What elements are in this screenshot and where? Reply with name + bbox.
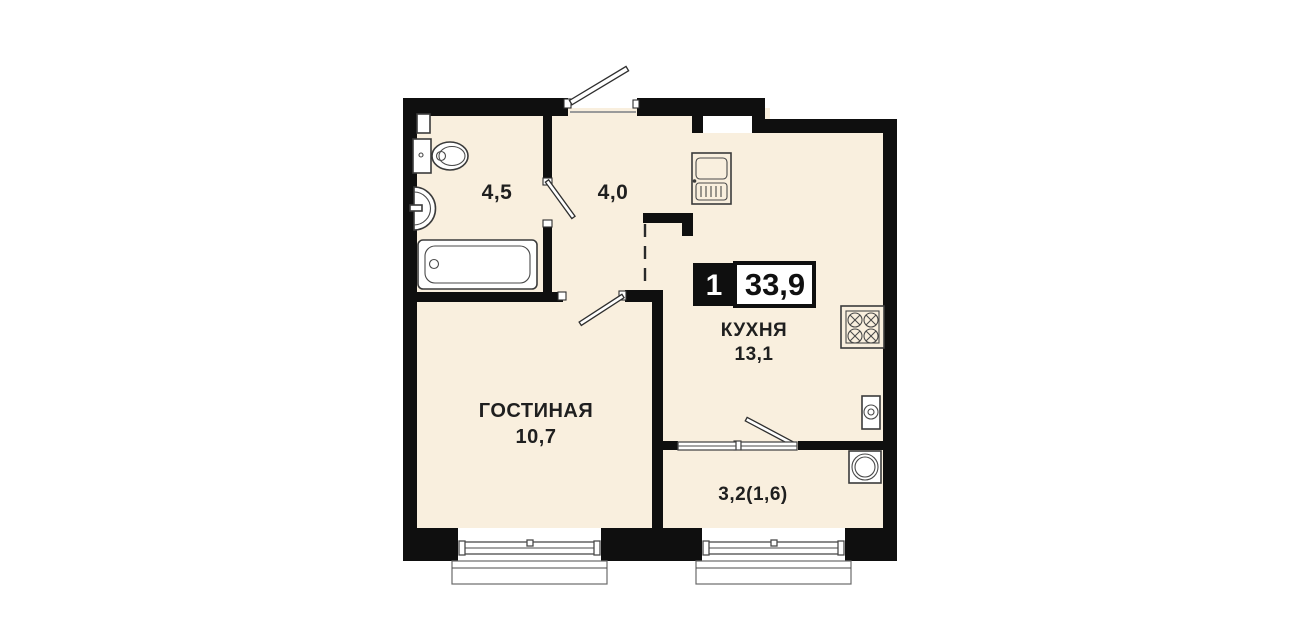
entrance-jamb-right <box>633 100 639 108</box>
kitchen-name-label: КУХНЯ <box>721 320 787 341</box>
wall-kitchen-living <box>652 290 663 531</box>
shelf-icon <box>417 114 430 133</box>
apartment-floor <box>407 108 892 556</box>
wall-bottom-1 <box>403 528 458 561</box>
window-cap-center <box>771 540 777 546</box>
window-cap-left <box>703 541 709 555</box>
floor-plan-canvas: 1 33,9 4,5 4,0 КУХНЯ 13,1 ГОСТИНАЯ 10,7 … <box>0 0 1301 630</box>
bathroom-area-label: 4,5 <box>482 181 513 204</box>
kitchen-area-label: 13,1 <box>735 344 774 365</box>
wall-bathroom-bottom <box>403 292 563 302</box>
balcony-window <box>696 528 851 584</box>
living-room-name-label: ГОСТИНАЯ <box>479 400 593 422</box>
toilet-cistern <box>413 139 431 173</box>
stove-outer <box>841 306 884 348</box>
balcony-area-label: 3,2(1,6) <box>718 484 787 505</box>
stove-icon <box>841 306 884 348</box>
badge-total-area: 33,9 <box>745 267 805 302</box>
window-cap-right <box>838 541 844 555</box>
entrance-door-leaf <box>569 66 628 104</box>
hallway-area-label: 4,0 <box>598 181 629 204</box>
washing-machine-body <box>849 451 881 483</box>
window-cap-right <box>594 541 600 555</box>
kitchen-sink-icon <box>692 153 731 204</box>
wall-balcony-divider-right <box>798 441 897 450</box>
window-sill <box>696 561 851 584</box>
kitchen-sink-tap <box>693 179 697 183</box>
wall-top-c <box>765 119 897 133</box>
water-heater-icon <box>862 396 880 429</box>
living-room-area-label: 10,7 <box>516 426 557 448</box>
living-room-window <box>452 528 607 584</box>
wall-kitchen-niche-side <box>692 98 703 133</box>
apartment-badge: 1 33,9 <box>693 263 814 306</box>
bathroom-door-jamb-bottom <box>543 220 552 227</box>
floor-plan: 1 33,9 4,5 4,0 КУХНЯ 13,1 ГОСТИНАЯ 10,7 … <box>0 0 1301 630</box>
toilet-icon <box>413 139 468 173</box>
wall-bottom-2 <box>601 528 702 561</box>
wall-top-step <box>752 98 765 133</box>
window-cap-center <box>527 540 533 546</box>
living-door-jamb-left <box>558 292 566 300</box>
water-heater-body <box>862 396 880 429</box>
badge-room-count: 1 <box>706 269 723 302</box>
wall-bathroom-right-lower <box>543 227 552 292</box>
wall-bathroom-right-upper <box>543 116 552 178</box>
sink-tap <box>410 205 422 211</box>
window-cap-left <box>459 541 465 555</box>
washing-machine-icon <box>849 451 881 483</box>
wall-balcony-divider-left <box>663 441 678 450</box>
bathtub-outer <box>418 240 537 289</box>
wall-hall-kitchen-stub <box>682 213 693 236</box>
wall-bottom-3 <box>845 528 897 561</box>
wall-right <box>883 119 897 561</box>
bathtub-icon <box>418 240 537 289</box>
window-sill <box>452 561 607 584</box>
